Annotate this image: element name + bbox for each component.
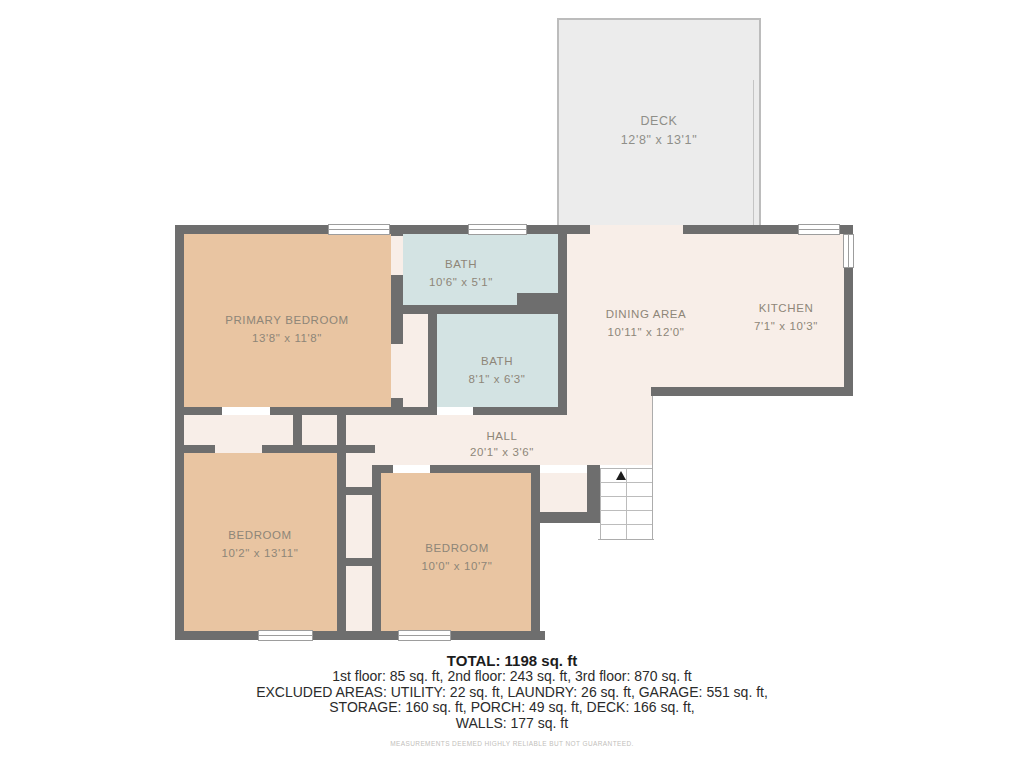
wall-bedrooms-divider-right	[372, 465, 381, 631]
room-dims: 7'1" x 10'3"	[754, 318, 818, 336]
dining-area-label: DINING AREA 10'11" x 12'0"	[606, 306, 687, 342]
wall-hall-bottom-a	[372, 465, 393, 473]
wall-hall-top-c	[473, 407, 567, 415]
window-bottom-left-bedroom	[258, 630, 313, 641]
closet-vestibule-floor	[403, 314, 428, 407]
window-top-bath	[468, 224, 527, 235]
room-name: BATH	[469, 353, 526, 371]
room-name: KITCHEN	[754, 300, 818, 318]
floor-plan-page: DECK 12'8" x 13'1" PRIMARY BEDROOM 13'8"…	[0, 0, 1024, 768]
wall-hall-bottom-b	[430, 465, 540, 473]
wall-hall-top-b	[270, 407, 433, 415]
window-bottom-right-bedroom	[398, 630, 451, 641]
room-name: BEDROOM	[221, 527, 298, 545]
floor-areas-text: 1st floor: 85 sq. ft, 2nd floor: 243 sq.…	[0, 669, 1024, 685]
stair-center-line	[626, 468, 627, 540]
wall-bath-lower-left	[428, 314, 437, 415]
wall-left	[175, 225, 184, 640]
deck-label: DECK 12'8" x 13'1"	[621, 112, 697, 151]
wall-right-lower	[531, 465, 540, 640]
room-name: DINING AREA	[606, 306, 687, 324]
window-top-kitchen	[798, 224, 840, 235]
excluded-areas-text-2: STORAGE: 160 sq. ft, PORCH: 49 sq. ft, D…	[0, 700, 1024, 716]
wall-bottom	[175, 631, 545, 640]
wall-kitchen-bottom	[651, 387, 853, 396]
room-name: DECK	[621, 112, 697, 131]
hall-label: HALL 20'1" x 3'6"	[470, 429, 534, 460]
room-dims: 10'0" x 10'7"	[422, 558, 493, 576]
disclaimer-text: MEASUREMENTS DEEMED HIGHLY RELIABLE BUT …	[0, 740, 1024, 747]
room-name: BEDROOM	[422, 540, 493, 558]
wall-hall-top-a	[175, 407, 222, 415]
excluded-areas-text-1: EXCLUDED AREAS: UTILITY: 22 sq. ft, LAUN…	[0, 685, 1024, 701]
stairs-up-arrow-icon	[616, 471, 626, 480]
room-name: BATH	[429, 256, 493, 274]
bath-lower-label: BATH 8'1" x 6'3"	[469, 353, 526, 389]
room-dims: 10'11" x 12'0"	[606, 324, 687, 342]
window-top-primary	[328, 224, 390, 235]
room-name: PRIMARY BEDROOM	[225, 312, 349, 330]
bedroom-left-label: BEDROOM 10'2" x 13'11"	[221, 527, 298, 563]
wall-bath-notch	[517, 293, 558, 305]
room-dims: 13'8" x 11'8"	[225, 330, 349, 348]
wall-closet-shelf-1	[346, 487, 372, 495]
wall-bedrooms-divider-left	[337, 415, 346, 631]
wall-closetstrip-right	[293, 415, 302, 445]
bath-upper-label: BATH 10'6" x 5'1"	[429, 256, 493, 292]
door-vestibule	[391, 344, 403, 398]
wall-stair-stub-horiz	[531, 512, 600, 523]
wall-bath-dining	[558, 225, 567, 415]
bedroom-right-label: BEDROOM 10'0" x 10'7"	[422, 540, 493, 576]
primary-bedroom-label: PRIMARY BEDROOM 13'8" x 11'8"	[225, 312, 349, 348]
room-dims: 20'1" x 3'6"	[470, 445, 534, 461]
deck-railing	[753, 80, 754, 226]
room-name: HALL	[470, 429, 534, 445]
closet-pocket-floor	[540, 473, 587, 512]
area-summary: TOTAL: 1198 sq. ft 1st floor: 85 sq. ft,…	[0, 652, 1024, 747]
total-area-text: TOTAL: 1198 sq. ft	[0, 652, 1024, 669]
landing-boundary-h	[598, 539, 654, 540]
room-dims: 8'1" x 6'3"	[469, 371, 526, 389]
room-dims: 10'6" x 5'1"	[429, 274, 493, 292]
wall-bath-upper-bottom	[391, 305, 567, 314]
landing-boundary-v	[652, 396, 653, 540]
wall-closetstrip-bottom-a	[175, 445, 215, 453]
window-kitchen-right	[843, 234, 854, 268]
wall-closetstrip-bottom-b	[262, 445, 375, 453]
kitchen-label: KITCHEN 7'1" x 10'3"	[754, 300, 818, 336]
room-dims: 10'2" x 13'11"	[221, 545, 298, 563]
door-bath-upper	[391, 236, 403, 275]
door-deck-slider	[590, 225, 683, 234]
room-dims: 12'8" x 13'1"	[621, 131, 697, 150]
wall-closet-shelf-2	[346, 558, 372, 566]
excluded-areas-text-3: WALLS: 177 sq. ft	[0, 716, 1024, 732]
